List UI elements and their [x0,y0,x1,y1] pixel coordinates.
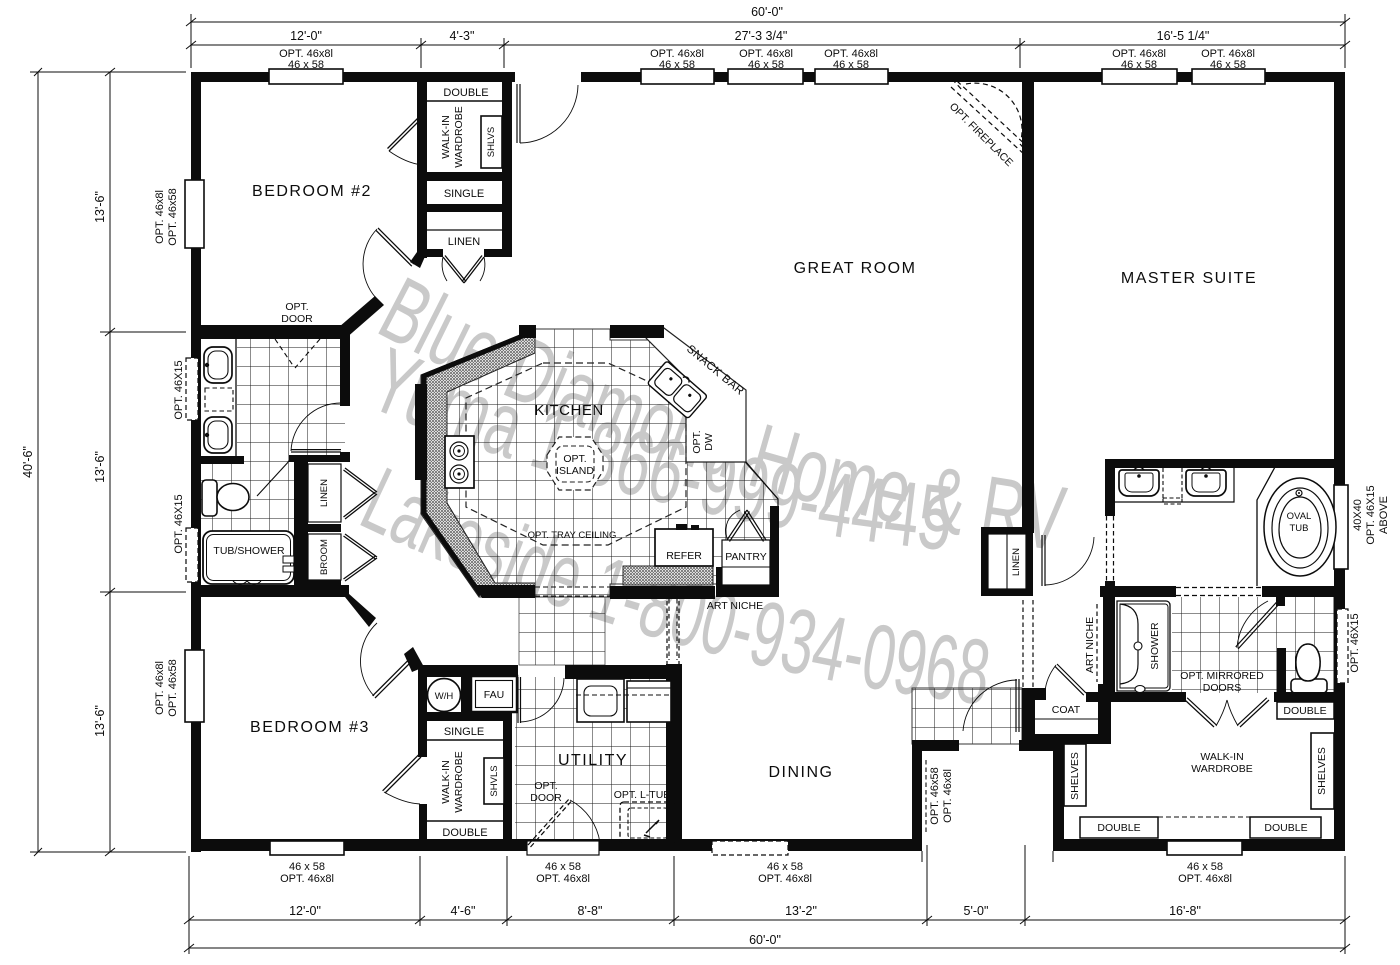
svg-text:OPT. 46x8l: OPT. 46x8l [758,873,812,885]
svg-text:SHLVS: SHLVS [486,127,497,157]
svg-text:5'-0": 5'-0" [964,904,989,918]
svg-text:LINEN: LINEN [1011,548,1022,576]
svg-text:WALK-IN: WALK-IN [440,115,452,158]
svg-text:16'-5 1/4": 16'-5 1/4" [1157,29,1210,43]
svg-text:BEDROOM #2: BEDROOM #2 [252,183,372,200]
svg-text:8'-8": 8'-8" [578,904,603,918]
svg-text:60'-0": 60'-0" [751,5,783,19]
svg-text:DOUBLE: DOUBLE [1283,705,1326,717]
svg-text:DINING: DINING [769,764,834,781]
svg-text:12'-0": 12'-0" [289,904,321,918]
svg-text:DW: DW [703,433,715,451]
svg-text:PANTRY: PANTRY [725,551,767,563]
svg-text:OPT.: OPT. [563,453,586,465]
svg-text:46 x 58: 46 x 58 [767,861,803,873]
svg-text:OPT. 46X15: OPT. 46X15 [173,494,185,553]
svg-text:OPT. 46x58: OPT. 46x58 [929,767,941,824]
svg-text:OPT.: OPT. [534,780,557,792]
svg-text:FAU: FAU [484,689,504,701]
svg-text:SINGLE: SINGLE [444,188,484,200]
svg-text:OPT. 46x8l: OPT. 46x8l [280,873,334,885]
svg-text:TUB/SHOWER: TUB/SHOWER [213,545,285,557]
svg-text:DOORS: DOORS [1203,682,1242,694]
svg-text:13'-2": 13'-2" [785,904,817,918]
svg-text:DOOR: DOOR [281,313,313,325]
svg-text:SINGLE: SINGLE [444,726,484,738]
svg-text:4'-6": 4'-6" [451,904,476,918]
svg-text:13'-6": 13'-6" [93,705,107,737]
svg-text:OPT. 46x8l: OPT. 46x8l [942,769,954,823]
svg-text:TUB: TUB [1290,523,1309,534]
svg-text:OPT. 46x8l: OPT. 46x8l [1178,873,1232,885]
svg-text:46 x 58: 46 x 58 [545,861,581,873]
svg-text:16'-8": 16'-8" [1169,904,1201,918]
svg-text:GREAT ROOM: GREAT ROOM [794,260,917,277]
svg-text:OPT. 46x8l: OPT. 46x8l [536,873,590,885]
svg-text:BROOM: BROOM [319,539,330,575]
svg-text:WARDROBE: WARDROBE [453,751,465,812]
svg-text:40X40: 40X40 [1352,499,1364,531]
svg-text:ART NICHE: ART NICHE [1084,617,1096,673]
svg-text:MASTER SUITE: MASTER SUITE [1121,270,1257,287]
svg-text:OPT. 46x8l: OPT. 46x8l [154,190,166,244]
svg-text:W/H: W/H [435,691,454,702]
svg-text:OPT. 46x58: OPT. 46x58 [167,659,179,716]
svg-text:SHVLS: SHVLS [489,765,500,796]
svg-text:ISLAND: ISLAND [556,465,594,477]
svg-text:OPT. 46X15: OPT. 46X15 [1349,613,1361,672]
svg-text:ART NICHE: ART NICHE [707,600,763,612]
svg-text:OPT. 46x8l: OPT. 46x8l [154,661,166,715]
svg-text:OPT. L-TUB: OPT. L-TUB [614,789,671,801]
svg-text:DOUBLE: DOUBLE [1264,822,1307,834]
svg-text:40'-6": 40'-6" [21,446,35,478]
svg-text:46 x 58: 46 x 58 [289,861,325,873]
svg-text:WALK-IN: WALK-IN [1200,751,1243,763]
svg-text:WARDROBE: WARDROBE [1191,763,1252,775]
svg-text:UTILITY: UTILITY [558,752,628,769]
svg-text:SHELVES: SHELVES [1316,747,1328,795]
svg-text:WALK-IN: WALK-IN [440,760,452,803]
svg-text:ABOVE: ABOVE [1378,496,1390,534]
svg-text:SHELVES: SHELVES [1069,752,1081,800]
svg-text:60'-0": 60'-0" [749,933,781,947]
svg-text:KITCHEN: KITCHEN [534,402,603,419]
svg-text:27'-3 3/4": 27'-3 3/4" [735,29,788,43]
svg-text:WARDROBE: WARDROBE [453,106,465,167]
svg-text:DOUBLE: DOUBLE [1097,822,1140,834]
svg-text:BEDROOM #3: BEDROOM #3 [250,719,370,736]
svg-text:OPT. TRAY CEILING: OPT. TRAY CEILING [528,530,617,541]
svg-text:COAT: COAT [1052,704,1081,716]
svg-text:OVAL: OVAL [1287,511,1312,522]
svg-text:OPT. 46x58: OPT. 46x58 [167,188,179,245]
svg-text:13'-6": 13'-6" [93,191,107,223]
svg-text:DOOR: DOOR [530,792,562,804]
svg-text:REFER: REFER [666,550,702,562]
svg-text:13'-6": 13'-6" [93,451,107,483]
svg-text:DOUBLE: DOUBLE [442,827,487,839]
svg-text:LINEN: LINEN [319,479,330,507]
svg-text:46 x 58: 46 x 58 [1187,861,1223,873]
svg-text:OPT.: OPT. [285,301,308,313]
svg-text:OPT. 46X15: OPT. 46X15 [1365,485,1377,544]
svg-text:OPT.: OPT. [691,430,703,453]
svg-text:12'-0": 12'-0" [290,29,322,43]
svg-text:LINEN: LINEN [448,236,480,248]
svg-text:4'-3": 4'-3" [450,29,475,43]
svg-text:DOUBLE: DOUBLE [443,87,488,99]
svg-text:OPT. 46X15: OPT. 46X15 [173,360,185,419]
svg-text:SHOWER: SHOWER [1149,622,1161,670]
svg-text:OPT. MIRRORED: OPT. MIRRORED [1180,670,1264,682]
